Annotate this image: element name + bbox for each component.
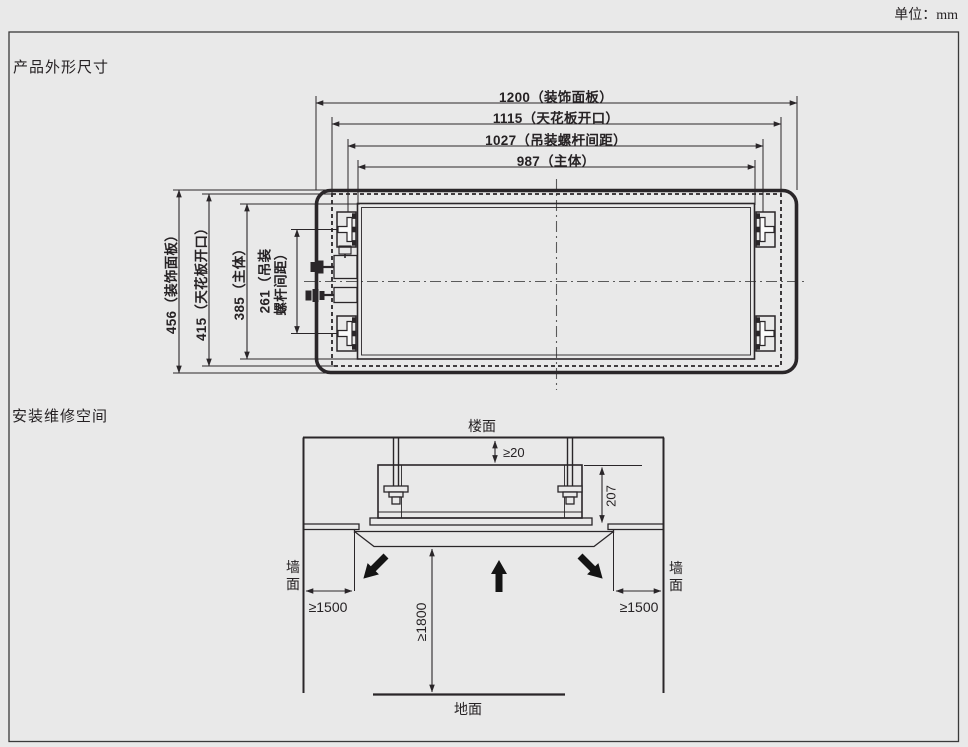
- section-structure: [303, 438, 664, 694]
- airflow-arrow-right: [574, 550, 608, 584]
- wall-label-left: 墙面: [285, 561, 301, 595]
- section-hanger-left: [384, 486, 408, 504]
- dim-ceiling-opening-width: 1115（天花板开口）: [493, 107, 619, 127]
- plan-hanger-bracket-top-right: [756, 212, 775, 247]
- section-view-drawing: [303, 438, 664, 695]
- dim-side-clearance-left: ≥1500: [309, 599, 348, 615]
- plan-hanger-bracket-top-left: [337, 212, 356, 247]
- plan-pipe-connections: [306, 246, 358, 303]
- border-frame: [9, 32, 959, 742]
- plan-hanger-bracket-bottom-left: [337, 316, 356, 351]
- dim-body-height: 385（主体）: [228, 242, 248, 321]
- technical-drawing-page: 单位：mm 产品外形尺寸 1200（装饰面板） 1115（天花板开口） 1027…: [0, 0, 968, 747]
- dim-unit-height: 207: [604, 485, 619, 507]
- plan-hanger-bracket-bottom-right: [756, 316, 775, 351]
- wall-label-right: 墙面: [668, 562, 684, 596]
- dim-screw-pitch-height-line2: 螺杆间距）: [273, 247, 289, 316]
- section-hanging-rods: [394, 438, 573, 488]
- dim-floor-clearance: ≥1800: [413, 603, 429, 642]
- airflow-arrow-left: [358, 550, 392, 584]
- dim-screw-pitch-width: 1027（吊装螺杆间距）: [485, 129, 627, 149]
- drawing-canvas: [0, 0, 968, 747]
- service-section-title: 安装维修空间: [12, 405, 108, 426]
- section-hanger-right: [558, 486, 582, 504]
- ground-label: 地面: [454, 699, 482, 719]
- floor-above-label: 楼面: [468, 416, 496, 436]
- dim-ceiling-opening-height: 415（天花板开口）: [190, 221, 210, 341]
- dim-panel-height: 456（装饰面板）: [160, 228, 180, 334]
- dim-screw-pitch-height-line1: 261（吊装: [257, 247, 273, 316]
- dim-panel-width: 1200（装饰面板）: [499, 86, 613, 106]
- section-decorative-panel: [355, 530, 614, 547]
- unit-note: 单位：mm: [894, 4, 958, 24]
- section-dim-lines: [306, 441, 661, 692]
- dim-slab-gap: ≥20: [503, 445, 525, 460]
- outline-section-title: 产品外形尺寸: [13, 56, 109, 77]
- dim-body-width: 987（主体）: [517, 150, 596, 170]
- dim-screw-pitch-height: 261（吊装 螺杆间距）: [257, 247, 288, 316]
- dim-side-clearance-right: ≥1500: [620, 599, 659, 615]
- airflow-arrow-up: [491, 560, 507, 592]
